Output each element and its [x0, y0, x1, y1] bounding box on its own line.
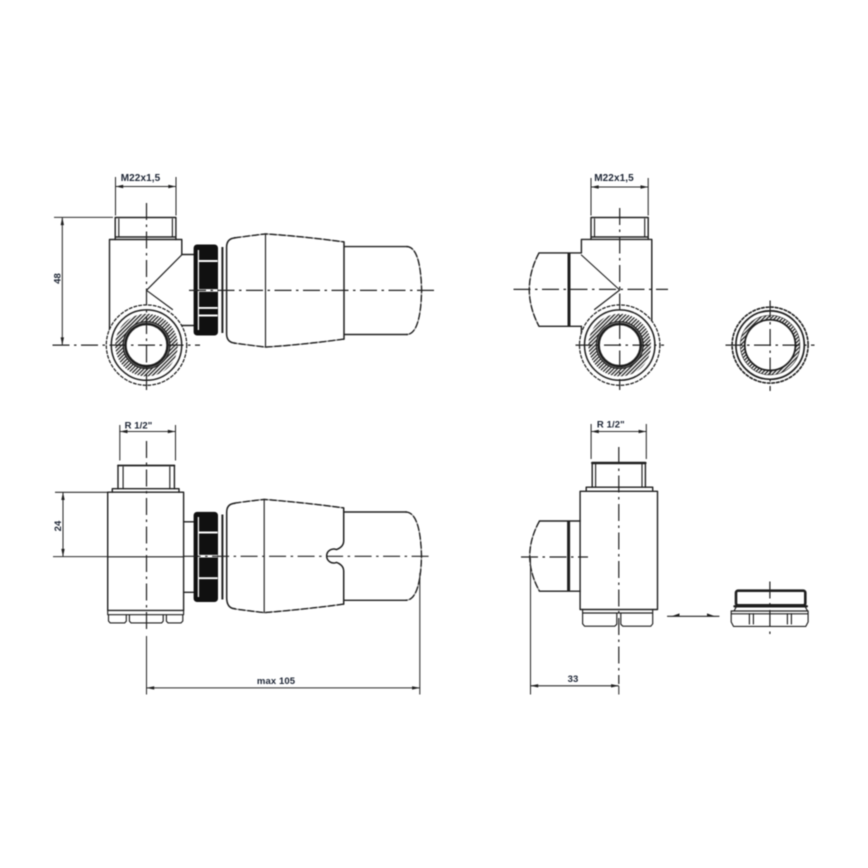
svg-text:M22x1,5: M22x1,5 — [594, 173, 634, 184]
svg-text:48: 48 — [53, 273, 64, 284]
svg-text:max 105: max 105 — [257, 676, 296, 687]
svg-text:33: 33 — [568, 674, 579, 685]
svg-text:R 1/2": R 1/2" — [597, 420, 625, 431]
svg-text:24: 24 — [53, 520, 64, 531]
svg-text:R 1/2": R 1/2" — [125, 421, 153, 432]
svg-text:M22x1,5: M22x1,5 — [121, 173, 161, 184]
